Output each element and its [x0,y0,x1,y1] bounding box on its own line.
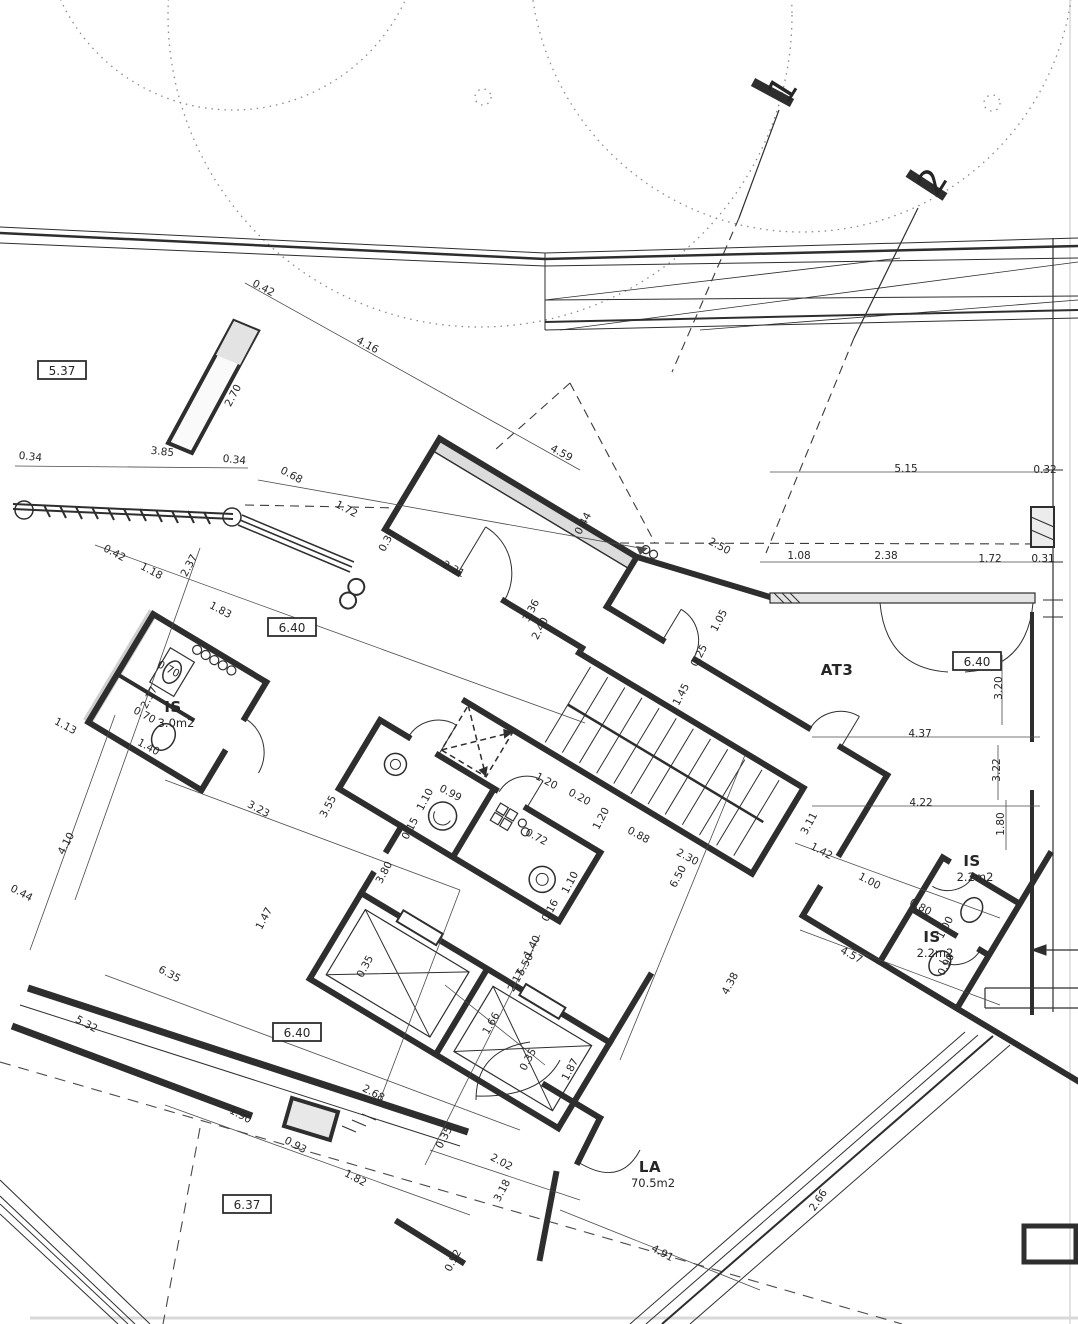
dimension-label: 0.70 [131,705,157,727]
dimension-label: 3.55 [318,793,340,819]
room-area-label: 3.0m2 [158,716,195,730]
dimension-label: 6.50 [668,863,690,889]
section-numbers: 12 [760,69,957,202]
section-number: 1 [760,69,807,110]
vestibule-door [458,527,532,601]
dimension-label: 4.22 [909,797,932,809]
dimension-label: 2.66 [807,1187,830,1213]
dimension-label: 5.32 [73,1014,99,1036]
dimension-lines [15,283,1048,1290]
floor-plan-drawing: 0.424.162.700.343.850.340.681.724.590.35… [0,0,1078,1324]
dimension-label: 2.38 [874,550,897,562]
dimension-label: 0.93 [282,1135,308,1157]
dimension-label: 0.34 [222,453,247,467]
dimension-label: 4.91 [649,1243,675,1265]
dimension-label: 0.42 [250,278,276,300]
dimension-label: 4.38 [720,970,742,996]
dimension-label: 0.88 [625,825,651,847]
level-marker-value: 6.40 [284,1026,311,1040]
room-area-label: 70.5m2 [631,1176,675,1190]
level-marker-value: 5.37 [49,364,76,378]
level-marker: 5.37 [38,361,86,379]
dimension-label: 0.35 [518,1046,540,1072]
dimension-label: 2.02 [488,1152,514,1174]
level-marker-value: 6.37 [234,1198,261,1212]
setting-out-dashed-lines [0,383,1050,1324]
dimension-label: 1.83 [207,600,233,622]
dimension-label: 1.05 [709,607,731,633]
dimension-label: 3.20 [993,676,1005,699]
dimension-label: 1.42 [808,841,834,863]
dimension-label: 0.42 [101,543,127,565]
dimension-label: 3.22 [991,758,1003,781]
dimension-label: 2.50 [706,536,732,558]
dimension-label: 1.20 [591,805,613,831]
la-room-walls [398,1085,640,1262]
dimension-label: 0.35 [377,527,399,553]
dimension-label: 1.08 [787,550,810,562]
dimension-label: 1.20 [533,771,559,793]
planter-wall [168,321,258,453]
dimension-label: 2.37 [179,552,201,578]
floor-plan-sheet: 0.424.162.700.343.850.340.681.724.590.35… [0,0,1078,1324]
section-number: 2 [910,161,957,202]
level-marker: 6.40 [273,1023,321,1041]
dimension-label: 1.72 [978,553,1001,565]
dimension-label: 0.72 [523,827,549,849]
dimension-label: 5.15 [894,463,917,475]
ramp-lines [630,1032,1010,1324]
room-name-label: AT3 [821,661,854,679]
dimension-label: 3.80 [374,859,396,885]
dimension-label: 0.68 [278,465,304,487]
dimension-label: 4.59 [548,443,574,465]
dimension-labels: 0.424.162.700.343.850.340.681.724.590.35… [8,278,1056,1274]
dimension-label: 1.18 [138,561,164,583]
dimension-label: 0.35 [355,953,377,979]
dimension-label: 6.35 [156,964,182,986]
dimension-label: 0.35 [434,1124,456,1150]
detail-box [1024,1226,1076,1262]
level-marker: 6.37 [223,1195,271,1213]
level-marker: 6.40 [268,618,316,636]
room-area-label: 2.2m2 [917,946,954,960]
dimension-label: 0.99 [437,783,463,805]
dimension-label: 0.44 [8,883,35,905]
dimension-label: 0.34 [18,450,43,464]
dimension-label: 3.85 [150,445,175,459]
dimension-label: 0.32 [1033,464,1056,476]
dimension-label: 1.47 [254,905,276,931]
dimension-label: 4.37 [908,728,931,740]
room-name-label: IS [923,928,940,946]
central-bathrooms [339,690,619,921]
room-name-label: IS [963,852,980,870]
fence-railing [13,501,354,572]
level-marker-value: 6.40 [964,655,991,669]
dimension-label: 2.31 [440,559,466,581]
level-marker: 6.40 [953,652,1001,670]
dimension-label: 4.16 [354,335,381,357]
level-marker-value: 6.40 [279,621,306,635]
corridor-walls [607,576,906,775]
room-name-label: IS [164,698,181,716]
dimension-label: 1.90 [227,1105,253,1127]
dimension-label: 3.11 [799,810,821,836]
dimension-label: 1.66 [480,1010,502,1037]
vestibule-walls [385,439,637,648]
dimension-label: 1.45 [671,681,693,707]
dimension-label: 3.18 [492,1177,514,1203]
tree-outline-circles [43,0,1074,327]
room-labels: IS3.0m2AT3IS2.2m2IS2.2m2LA70.5m2 [158,661,994,1190]
dimension-label: 4.10 [56,830,78,856]
dimension-label: 1.80 [995,812,1007,835]
room-area-label: 2.2m2 [957,870,994,884]
road-band [0,227,1078,330]
dimension-label: 1.13 [52,716,78,738]
dimension-label: 1.82 [342,1168,368,1190]
dimension-label: 1.72 [333,499,359,521]
dimension-label: 1.10 [415,786,437,812]
dimension-label: 0.31 [1031,553,1054,565]
dimension-label: 3.23 [245,799,271,821]
dimension-label: 0.20 [566,787,592,809]
room-name-label: LA [639,1158,661,1176]
left-toilet-room [83,609,302,810]
